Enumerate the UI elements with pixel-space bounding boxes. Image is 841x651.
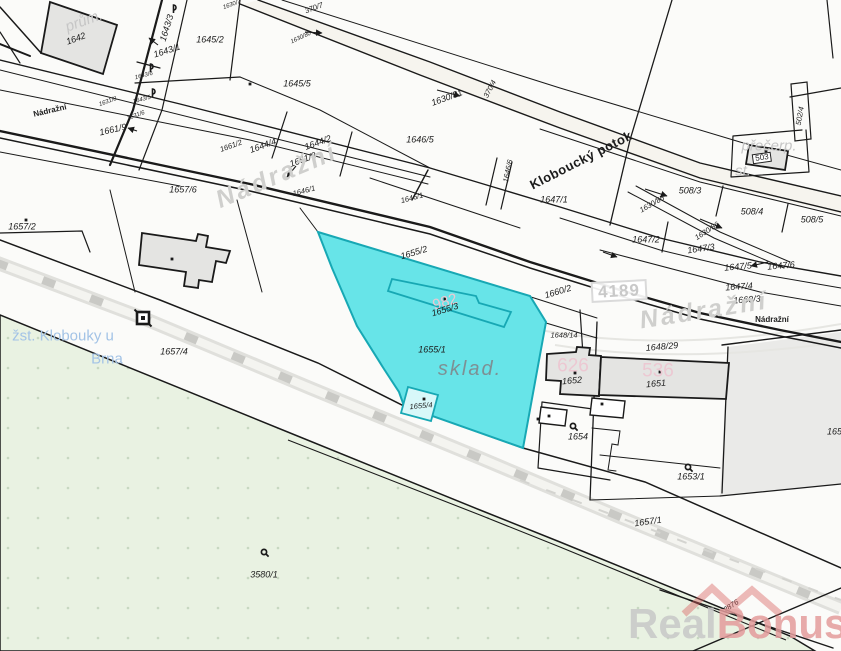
building-definition-point <box>601 403 604 406</box>
watermark-part-red: Bonus <box>717 600 841 647</box>
watermark-part-gray: Real <box>628 600 717 647</box>
building-definition-point <box>423 398 426 401</box>
building-definition-point <box>171 258 174 261</box>
building-definition-point <box>249 83 252 86</box>
building-definition-point <box>444 298 447 301</box>
realbonus-watermark: RealBonus.c <box>608 578 841 651</box>
building-definition-point <box>537 418 540 421</box>
building-definition-point <box>548 415 551 418</box>
building-definition-point <box>25 219 28 222</box>
watermark-text: RealBonus.c <box>628 600 841 648</box>
building-definition-point <box>765 150 768 153</box>
building-1651 <box>599 357 729 399</box>
station-symbol <box>135 310 152 327</box>
building-definition-point <box>659 371 662 374</box>
cadastral-map-svg[interactable] <box>0 0 841 651</box>
building-definition-point <box>574 372 577 375</box>
cadastral-map-viewport[interactable]: prům.16421643/31643/11643/61643/51645/21… <box>0 0 841 651</box>
